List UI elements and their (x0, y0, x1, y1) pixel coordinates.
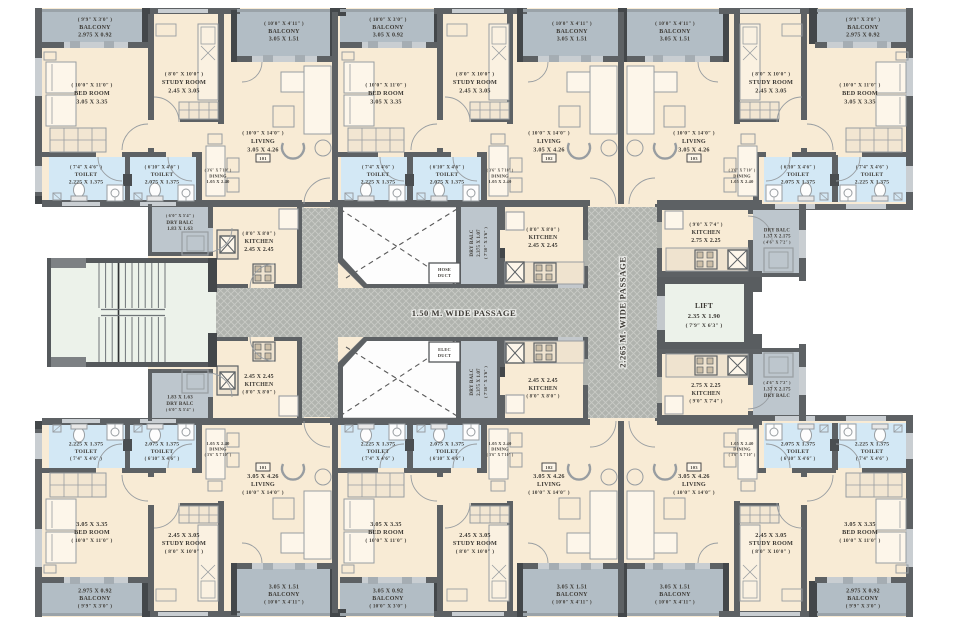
svg-text:KITCHEN: KITCHEN (529, 386, 558, 392)
svg-text:1.05 X 2.40: 1.05 X 2.40 (207, 441, 231, 446)
svg-text:( 8′0″ X 10′0″ ): ( 8′0″ X 10′0″ ) (456, 71, 495, 78)
svg-text:3.05 X 3.35: 3.05 X 3.35 (76, 98, 107, 105)
svg-text:2.45 X 3.05: 2.45 X 3.05 (459, 87, 490, 94)
svg-text:( 7′4″ X 4′6″ ): ( 7′4″ X 4′6″ ) (362, 165, 394, 170)
svg-text:BALCONY: BALCONY (268, 592, 300, 598)
svg-text:( 10′0″ X 14′0″ ): ( 10′0″ X 14′0″ ) (242, 130, 283, 137)
svg-text:TOILET: TOILET (787, 172, 810, 178)
svg-text:BALCONY: BALCONY (556, 29, 588, 35)
svg-text:( 10′0″ X 4′11″ ): ( 10′0″ X 4′11″ ) (655, 598, 695, 605)
svg-text:KITCHEN: KITCHEN (692, 391, 721, 397)
svg-text:DINING: DINING (733, 174, 751, 179)
svg-text:3.05 X 1.51: 3.05 X 1.51 (557, 37, 588, 43)
svg-text:TOILET: TOILET (787, 449, 810, 455)
svg-text:LIVING: LIVING (682, 138, 706, 145)
svg-text:BALCONY: BALCONY (79, 596, 111, 602)
svg-text:BED ROOM: BED ROOM (368, 529, 404, 536)
svg-text:2.075 X 1.375: 2.075 X 1.375 (781, 179, 816, 185)
svg-text:( 7′10″ X 3′6″ ): ( 7′10″ X 3′6″ ) (483, 366, 488, 398)
svg-text:2.35 X 1.90: 2.35 X 1.90 (688, 313, 720, 320)
svg-text:KITCHEN: KITCHEN (529, 235, 558, 241)
svg-text:( 9′9″ X 3′0″ ): ( 9′9″ X 3′0″ ) (78, 602, 112, 609)
svg-text:( 3′6″ X 7′10″ ): ( 3′6″ X 7′10″ ) (205, 169, 232, 173)
svg-text:2.225 X 1.375: 2.225 X 1.375 (69, 179, 104, 185)
svg-text:DUCT: DUCT (438, 273, 451, 278)
svg-text:2.975 X 0.92: 2.975 X 0.92 (78, 33, 112, 39)
svg-text:BALCONY: BALCONY (556, 592, 588, 598)
svg-text:( 9′9″ X 3′0″ ): ( 9′9″ X 3′0″ ) (846, 602, 880, 609)
svg-text:3.05 X 0.92: 3.05 X 0.92 (373, 589, 404, 595)
svg-text:TOILET: TOILET (367, 172, 390, 178)
svg-text:( 10′0″ X 4′11″ ): ( 10′0″ X 4′11″ ) (552, 598, 592, 605)
svg-text:LIVING: LIVING (682, 481, 706, 488)
svg-text:( 7′10″ X 3′6″ ): ( 7′10″ X 3′6″ ) (483, 227, 488, 259)
svg-text:BED ROOM: BED ROOM (842, 529, 878, 536)
svg-text:2.075 X 1.375: 2.075 X 1.375 (430, 179, 465, 185)
svg-text:( 6′10″ X 4′6″ ): ( 6′10″ X 4′6″ ) (145, 165, 180, 170)
svg-text:BED ROOM: BED ROOM (842, 90, 878, 97)
svg-text:3.05 X 1.51: 3.05 X 1.51 (269, 37, 300, 43)
svg-text:2.075 X 1.375: 2.075 X 1.375 (781, 442, 816, 448)
svg-text:3.05 X 1.51: 3.05 X 1.51 (557, 585, 588, 591)
svg-text:2.225 X 1.375: 2.225 X 1.375 (361, 179, 396, 185)
svg-text:BALCONY: BALCONY (847, 596, 879, 602)
svg-text:DRY BALC: DRY BALC (166, 221, 193, 226)
svg-text:( 3′6″ X 7′10″ ): ( 3′6″ X 7′10″ ) (487, 453, 514, 457)
svg-text:2.45 X 3.05: 2.45 X 3.05 (755, 532, 786, 539)
svg-text:( 10′0″ X 11′0″ ): ( 10′0″ X 11′0″ ) (71, 82, 112, 89)
svg-text:HOSE: HOSE (438, 267, 451, 272)
svg-text:( 8′0″ X 10′0″ ): ( 8′0″ X 10′0″ ) (165, 548, 204, 555)
svg-text:( 4′6″ X 7′2″ ): ( 4′6″ X 7′2″ ) (763, 240, 791, 245)
svg-text:3.05 X 4.26: 3.05 X 4.26 (533, 473, 564, 480)
svg-text:( 9′0″ X 7′4″ ): ( 9′0″ X 7′4″ ) (689, 400, 722, 405)
svg-text:2.225 X 1.375: 2.225 X 1.375 (855, 442, 890, 448)
svg-text:101: 101 (259, 156, 267, 161)
svg-text:( 10′0″ X 11′0″ ): ( 10′0″ X 11′0″ ) (365, 537, 406, 544)
svg-text:( 3′6″ X 7′10″ ): ( 3′6″ X 7′10″ ) (205, 453, 232, 457)
svg-text:BED ROOM: BED ROOM (74, 529, 110, 536)
svg-text:( 8′0″ X 8′0″ ): ( 8′0″ X 8′0″ ) (526, 228, 559, 233)
svg-text:BALCONY: BALCONY (847, 25, 879, 31)
svg-text:1.05 X 2.40: 1.05 X 2.40 (731, 441, 755, 446)
svg-text:TOILET: TOILET (436, 172, 459, 178)
svg-text:BALCONY: BALCONY (659, 29, 691, 35)
svg-text:1.83 X 1.63: 1.83 X 1.63 (167, 395, 193, 400)
svg-text:( 3′6″ X 7′10″ ): ( 3′6″ X 7′10″ ) (729, 169, 756, 173)
svg-text:TOILET: TOILET (75, 172, 98, 178)
svg-text:2.45 X 3.05: 2.45 X 3.05 (755, 87, 786, 94)
svg-text:STUDY ROOM: STUDY ROOM (749, 540, 793, 547)
svg-text:TOILET: TOILET (436, 449, 459, 455)
svg-text:BALCONY: BALCONY (659, 592, 691, 598)
svg-text:STUDY ROOM: STUDY ROOM (453, 540, 497, 547)
svg-text:3.05 X 4.26: 3.05 X 4.26 (247, 146, 278, 153)
svg-text:( 10′0″ X 4′11″ ): ( 10′0″ X 4′11″ ) (264, 20, 304, 27)
svg-text:1.05 X 2.40: 1.05 X 2.40 (489, 179, 513, 184)
svg-text:3.05 X 4.26: 3.05 X 4.26 (247, 473, 278, 480)
svg-text:( 3′6″ X 7′10″ ): ( 3′6″ X 7′10″ ) (729, 453, 756, 457)
svg-text:3.05 X 4.26: 3.05 X 4.26 (678, 473, 709, 480)
svg-text:2.375 X 1.07: 2.375 X 1.07 (477, 368, 482, 396)
svg-text:( 10′0″ X 11′0″ ): ( 10′0″ X 11′0″ ) (839, 82, 880, 89)
svg-text:BED ROOM: BED ROOM (368, 90, 404, 97)
svg-text:( 8′0″ X 10′0″ ): ( 8′0″ X 10′0″ ) (752, 548, 791, 555)
svg-text:TOILET: TOILET (861, 172, 884, 178)
svg-text:( 6′0″ X 5′4″ ): ( 6′0″ X 5′4″ ) (166, 213, 195, 218)
svg-text:KITCHEN: KITCHEN (245, 239, 274, 245)
svg-text:TOILET: TOILET (151, 449, 174, 455)
svg-text:( 3′6″ X 7′10″ ): ( 3′6″ X 7′10″ ) (487, 169, 514, 173)
svg-text:( 6′10″ X 4′6″ ): ( 6′10″ X 4′6″ ) (430, 457, 465, 462)
svg-text:1.05 X 2.40: 1.05 X 2.40 (489, 441, 513, 446)
svg-text:2.45 X 2.45: 2.45 X 2.45 (528, 243, 558, 249)
svg-text:BALCONY: BALCONY (79, 25, 111, 31)
svg-text:3.05 X 3.35: 3.05 X 3.35 (844, 521, 875, 528)
svg-text:BALCONY: BALCONY (372, 596, 404, 602)
svg-text:BALCONY: BALCONY (372, 25, 404, 31)
svg-text:( 10′0″ X 14′0″ ): ( 10′0″ X 14′0″ ) (673, 489, 714, 496)
svg-text:( 8′0″ X 10′0″ ): ( 8′0″ X 10′0″ ) (456, 548, 495, 555)
svg-text:DRY BALC: DRY BALC (470, 368, 475, 395)
svg-text:( 7′4″ X 4′6″ ): ( 7′4″ X 4′6″ ) (362, 457, 394, 462)
svg-text:DINING: DINING (491, 174, 509, 179)
svg-text:DINING: DINING (491, 447, 509, 452)
svg-text:3.05 X 3.35: 3.05 X 3.35 (370, 98, 401, 105)
svg-text:KITCHEN: KITCHEN (245, 382, 274, 388)
svg-text:2.75 X 2.25: 2.75 X 2.25 (691, 383, 721, 389)
svg-text:( 8′0″ X 10′0″ ): ( 8′0″ X 10′0″ ) (165, 71, 204, 78)
svg-text:3.05 X 1.51: 3.05 X 1.51 (660, 585, 691, 591)
svg-text:3.05 X 0.92: 3.05 X 0.92 (373, 33, 404, 39)
svg-text:( 7′4″ X 4′6″ ): ( 7′4″ X 4′6″ ) (70, 165, 102, 170)
svg-text:3.05 X 4.26: 3.05 X 4.26 (533, 146, 564, 153)
svg-text:LIVING: LIVING (251, 481, 275, 488)
svg-text:TOILET: TOILET (861, 449, 884, 455)
svg-text:( 7′4″ X 4′6″ ): ( 7′4″ X 4′6″ ) (856, 165, 888, 170)
svg-text:1.50 M. WIDE PASSAGE: 1.50 M. WIDE PASSAGE (412, 308, 516, 318)
svg-text:2.075 X 1.375: 2.075 X 1.375 (145, 442, 180, 448)
svg-text:2.075 X 1.375: 2.075 X 1.375 (430, 442, 465, 448)
svg-text:STUDY ROOM: STUDY ROOM (453, 79, 497, 86)
svg-text:BALCONY: BALCONY (268, 29, 300, 35)
svg-text:2.45 X 3.05: 2.45 X 3.05 (168, 87, 199, 94)
svg-text:STUDY ROOM: STUDY ROOM (162, 79, 206, 86)
svg-text:( 10′0″ X 11′0″ ): ( 10′0″ X 11′0″ ) (71, 537, 112, 544)
svg-text:( 10′0″ X 11′0″ ): ( 10′0″ X 11′0″ ) (365, 82, 406, 89)
svg-text:( 9′9″ X 3′0″ ): ( 9′9″ X 3′0″ ) (846, 16, 880, 23)
svg-text:1.05 X 2.40: 1.05 X 2.40 (731, 179, 755, 184)
svg-text:DINING: DINING (733, 447, 751, 452)
svg-text:( 8′0″ X 8′0″ ): ( 8′0″ X 8′0″ ) (526, 395, 559, 400)
svg-text:2.225 X 1.375: 2.225 X 1.375 (361, 442, 396, 448)
svg-text:ELEC: ELEC (438, 347, 451, 352)
svg-text:( 10′0″ X 14′0″ ): ( 10′0″ X 14′0″ ) (673, 130, 714, 137)
svg-text:( 10′0″ X 4′11″ ): ( 10′0″ X 4′11″ ) (655, 20, 695, 27)
svg-text:2.75 X 2.25: 2.75 X 2.25 (691, 238, 721, 244)
svg-text:STUDY ROOM: STUDY ROOM (749, 79, 793, 86)
svg-text:DRY BALC: DRY BALC (470, 229, 475, 256)
svg-text:2.225 X 1.375: 2.225 X 1.375 (855, 179, 890, 185)
svg-text:( 8′0″ X 8′0″ ): ( 8′0″ X 8′0″ ) (242, 232, 275, 237)
svg-text:( 8′0″ X 10′0″ ): ( 8′0″ X 10′0″ ) (752, 71, 791, 78)
svg-text:2.45 X 3.05: 2.45 X 3.05 (168, 532, 199, 539)
svg-text:3.05 X 3.35: 3.05 X 3.35 (76, 521, 107, 528)
svg-text:LIFT: LIFT (695, 301, 713, 310)
svg-text:2.45 X 2.45: 2.45 X 2.45 (528, 378, 558, 384)
svg-text:LIVING: LIVING (251, 138, 275, 145)
svg-text:( 6′10″ X 4′6″ ): ( 6′10″ X 4′6″ ) (145, 457, 180, 462)
svg-text:DRY BALC: DRY BALC (764, 394, 791, 399)
svg-text:( 6′0″ X 5′4″ ): ( 6′0″ X 5′4″ ) (166, 407, 195, 412)
svg-text:3.05 X 3.35: 3.05 X 3.35 (844, 98, 875, 105)
svg-text:( 10′0″ X 14′0″ ): ( 10′0″ X 14′0″ ) (528, 130, 569, 137)
svg-text:101: 101 (259, 465, 267, 470)
svg-text:3.05 X 1.51: 3.05 X 1.51 (660, 37, 691, 43)
svg-text:( 10′0″ X 4′11″ ): ( 10′0″ X 4′11″ ) (264, 598, 304, 605)
svg-text:TOILET: TOILET (151, 172, 174, 178)
svg-text:( 10′0″ X 14′0″ ): ( 10′0″ X 14′0″ ) (242, 489, 283, 496)
svg-text:( 10′0″ X 3′0″ ): ( 10′0″ X 3′0″ ) (369, 602, 406, 609)
svg-text:DINING: DINING (209, 174, 227, 179)
svg-text:2.975 X 0.92: 2.975 X 0.92 (78, 589, 112, 595)
svg-text:2.075 X 1.375: 2.075 X 1.375 (145, 179, 180, 185)
svg-text:KITCHEN: KITCHEN (692, 230, 721, 236)
svg-text:( 10′0″ X 11′0″ ): ( 10′0″ X 11′0″ ) (839, 537, 880, 544)
svg-text:( 10′0″ X 3′0″ ): ( 10′0″ X 3′0″ ) (369, 16, 406, 23)
svg-text:( 7′9″ X 6′3″ ): ( 7′9″ X 6′3″ ) (686, 322, 723, 329)
svg-text:( 7′4″ X 4′6″ ): ( 7′4″ X 4′6″ ) (856, 457, 888, 462)
svg-text:LIVING: LIVING (537, 481, 561, 488)
svg-text:3.05 X 1.51: 3.05 X 1.51 (269, 585, 300, 591)
svg-text:102: 102 (545, 465, 553, 470)
svg-text:102: 102 (545, 156, 553, 161)
svg-text:( 6′10″ X 4′6″ ): ( 6′10″ X 4′6″ ) (781, 457, 816, 462)
svg-text:STUDY ROOM: STUDY ROOM (162, 540, 206, 547)
svg-text:2.265 M. WIDE PASSAGE: 2.265 M. WIDE PASSAGE (618, 256, 628, 367)
svg-text:DRY BALC: DRY BALC (764, 228, 791, 233)
svg-text:( 10′0″ X 4′11″ ): ( 10′0″ X 4′11″ ) (552, 20, 592, 27)
svg-text:2.975 X 0.92: 2.975 X 0.92 (846, 33, 880, 39)
svg-text:2.225 X 1.375: 2.225 X 1.375 (69, 442, 104, 448)
svg-text:1.37 X 2.175: 1.37 X 2.175 (763, 388, 791, 393)
svg-text:( 8′0″ X 8′0″ ): ( 8′0″ X 8′0″ ) (242, 391, 275, 396)
svg-text:( 6′10″ X 4′6″ ): ( 6′10″ X 4′6″ ) (781, 165, 816, 170)
svg-text:1.83 X 1.63: 1.83 X 1.63 (167, 227, 193, 232)
svg-text:( 9′0″ X 7′4″ ): ( 9′0″ X 7′4″ ) (689, 223, 722, 228)
svg-text:103: 103 (690, 156, 698, 161)
svg-text:( 7′4″ X 4′6″ ): ( 7′4″ X 4′6″ ) (70, 457, 102, 462)
svg-text:2.45 X 2.45: 2.45 X 2.45 (244, 374, 274, 380)
svg-text:BED ROOM: BED ROOM (74, 90, 110, 97)
svg-text:103: 103 (690, 465, 698, 470)
svg-text:2.375 X 1.07: 2.375 X 1.07 (477, 229, 482, 257)
svg-text:( 4′6″ X 7′2″ ): ( 4′6″ X 7′2″ ) (763, 380, 791, 385)
svg-text:( 10′0″ X 14′0″ ): ( 10′0″ X 14′0″ ) (528, 489, 569, 496)
svg-text:LIVING: LIVING (537, 138, 561, 145)
svg-text:( 9′9″ X 3′0″ ): ( 9′9″ X 3′0″ ) (78, 16, 112, 23)
svg-text:2.975 X 0.92: 2.975 X 0.92 (846, 589, 880, 595)
svg-text:TOILET: TOILET (75, 449, 98, 455)
svg-text:TOILET: TOILET (367, 449, 390, 455)
svg-text:1.05 X 2.40: 1.05 X 2.40 (207, 179, 231, 184)
svg-text:3.05 X 3.35: 3.05 X 3.35 (370, 521, 401, 528)
svg-text:2.45 X 2.45: 2.45 X 2.45 (244, 247, 274, 253)
svg-text:DINING: DINING (209, 447, 227, 452)
svg-text:( 6′10″ X 4′6″ ): ( 6′10″ X 4′6″ ) (430, 165, 465, 170)
svg-text:DUCT: DUCT (438, 353, 451, 358)
svg-text:2.45 X 3.05: 2.45 X 3.05 (459, 532, 490, 539)
svg-text:3.05 X 4.26: 3.05 X 4.26 (678, 146, 709, 153)
